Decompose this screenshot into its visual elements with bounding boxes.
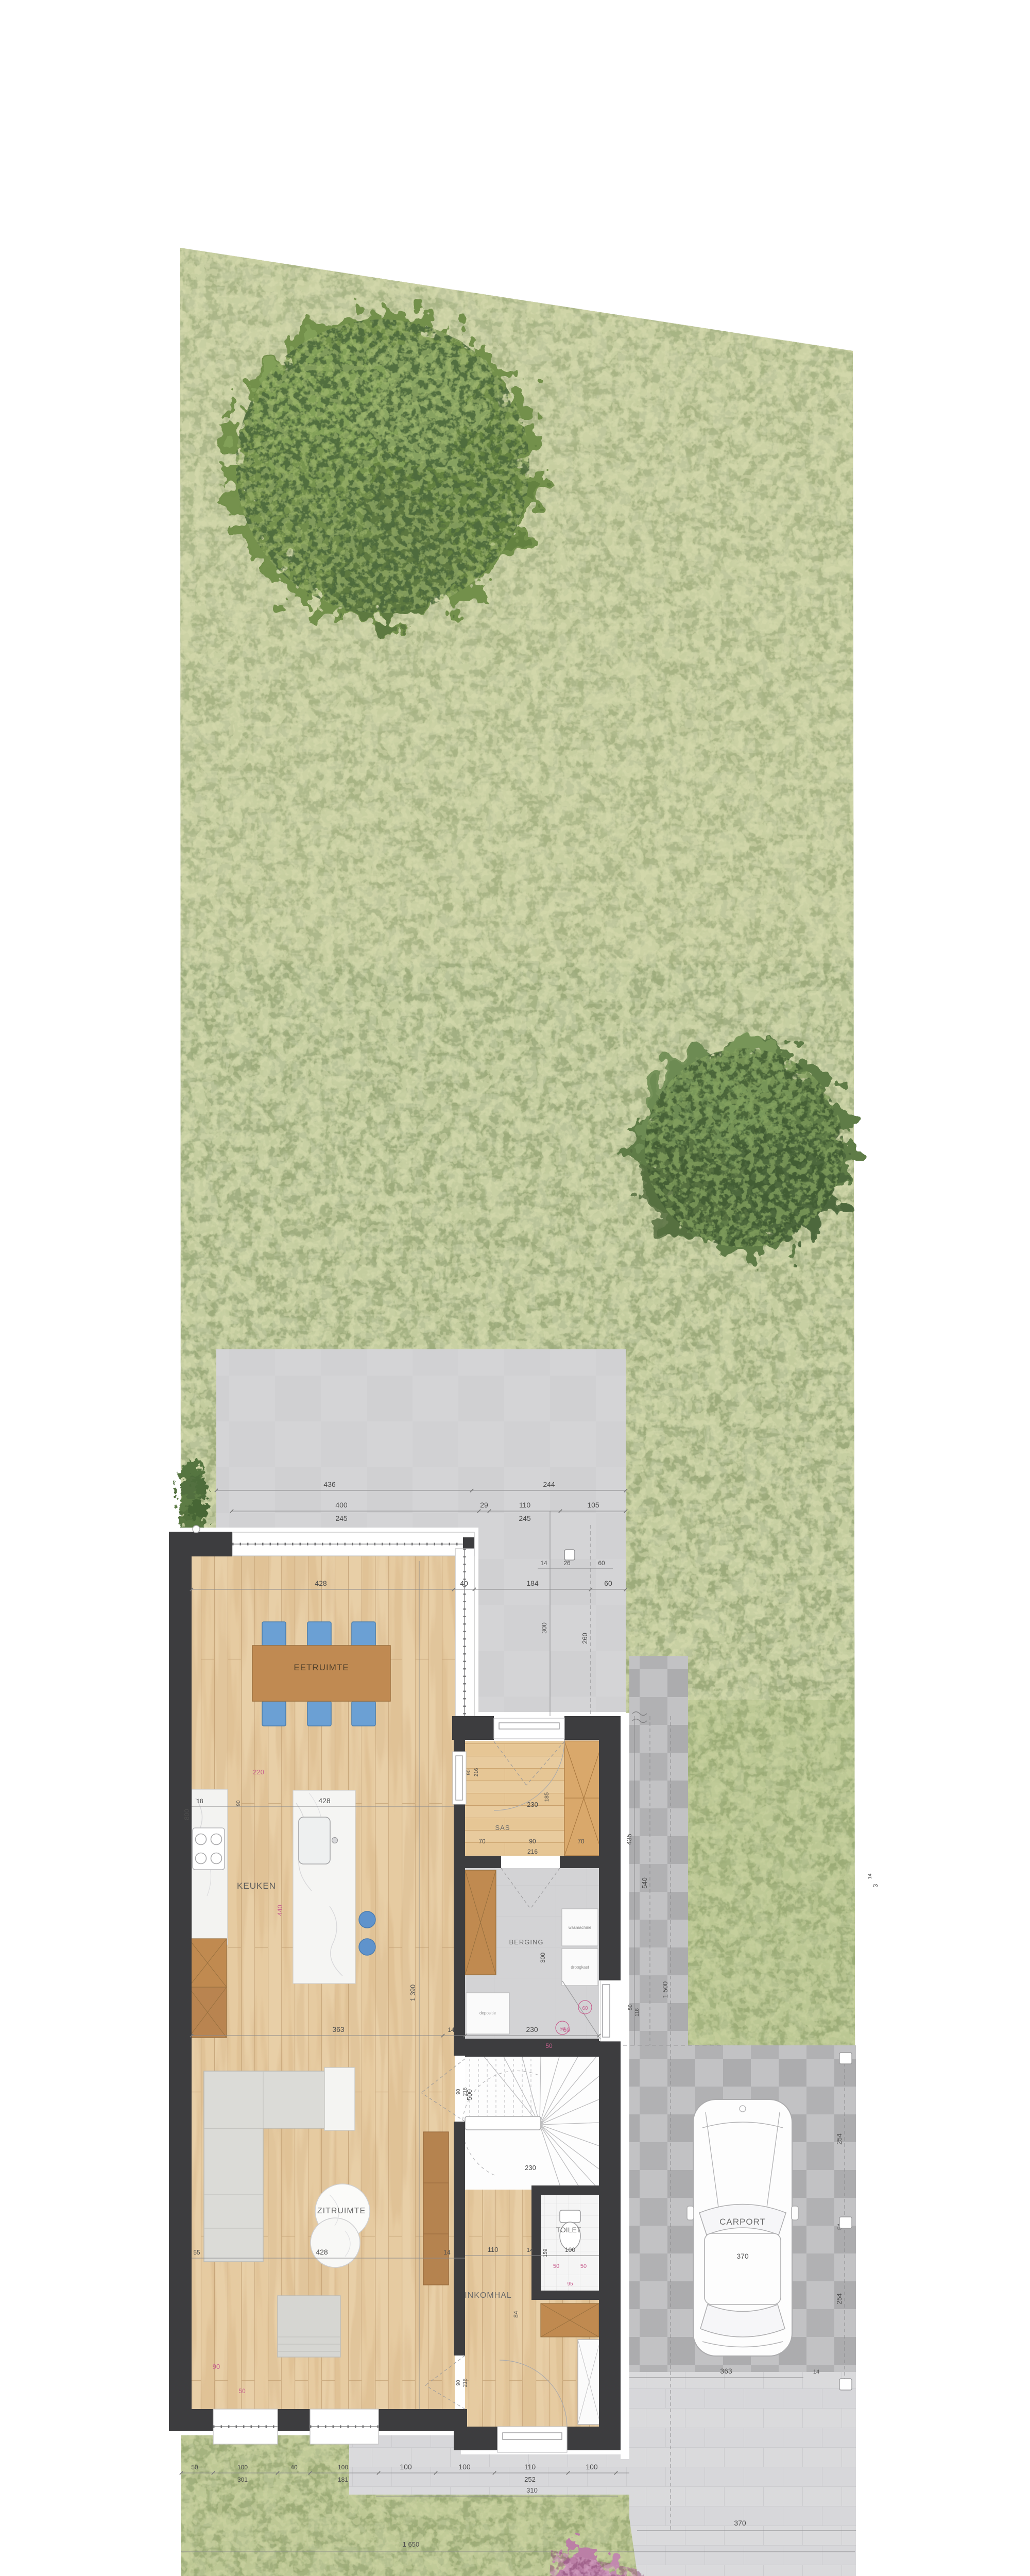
svg-text:INKOMHAL: INKOMHAL	[465, 2291, 512, 2300]
svg-text:90: 90	[456, 2089, 461, 2095]
svg-text:244: 244	[543, 1480, 555, 1488]
svg-text:wasmachine: wasmachine	[568, 1925, 592, 1930]
svg-text:90: 90	[213, 2363, 220, 2370]
svg-text:260: 260	[581, 1633, 589, 1644]
svg-text:50: 50	[553, 2263, 559, 2269]
svg-text:CARPORT: CARPORT	[719, 2217, 766, 2227]
svg-text:BERGING: BERGING	[509, 1938, 544, 1946]
svg-text:428: 428	[315, 1579, 327, 1587]
svg-text:110: 110	[488, 2246, 499, 2253]
svg-text:245: 245	[335, 1514, 348, 1522]
svg-text:1 500: 1 500	[661, 1981, 669, 1998]
svg-text:40: 40	[460, 1579, 468, 1587]
svg-text:230: 230	[527, 1801, 538, 1808]
svg-text:KEUKEN: KEUKEN	[237, 1881, 276, 1891]
svg-text:540: 540	[641, 1877, 648, 1889]
svg-text:100: 100	[458, 2463, 471, 2471]
svg-text:TOILET: TOILET	[556, 2226, 581, 2234]
svg-text:SAS: SAS	[495, 1824, 510, 1832]
svg-text:100: 100	[338, 2464, 348, 2471]
svg-text:216: 216	[462, 2087, 468, 2096]
svg-text:14: 14	[813, 2369, 819, 2375]
svg-text:droogkast: droogkast	[571, 1965, 589, 1970]
svg-text:90: 90	[529, 1838, 536, 1845]
svg-text:363: 363	[720, 2367, 732, 2375]
svg-text:185: 185	[544, 1792, 550, 1802]
svg-text:159: 159	[543, 2248, 548, 2257]
svg-text:435: 435	[625, 1834, 633, 1845]
svg-text:60: 60	[582, 2006, 588, 2011]
svg-text:50: 50	[238, 2387, 246, 2395]
svg-text:245: 245	[519, 1514, 531, 1522]
svg-text:181: 181	[338, 2476, 348, 2483]
svg-text:310: 310	[526, 2486, 538, 2494]
svg-text:800: 800	[183, 1809, 191, 1820]
svg-text:252: 252	[524, 2476, 536, 2483]
svg-text:216: 216	[462, 2378, 468, 2387]
svg-text:216: 216	[474, 1768, 479, 1776]
svg-text:50: 50	[559, 2026, 565, 2032]
svg-text:14: 14	[527, 2247, 533, 2253]
svg-text:EETRUIMTE: EETRUIMTE	[294, 1663, 349, 1672]
svg-text:300: 300	[540, 1622, 548, 1634]
svg-text:90: 90	[456, 2380, 461, 2386]
svg-text:14: 14	[443, 2249, 451, 2256]
svg-text:216: 216	[527, 1848, 538, 1855]
svg-text:70: 70	[478, 1838, 486, 1845]
svg-text:110: 110	[519, 1501, 531, 1509]
svg-text:depositie: depositie	[479, 2011, 496, 2015]
svg-text:100: 100	[565, 2246, 575, 2253]
svg-text:230: 230	[526, 2025, 538, 2033]
svg-text:18: 18	[196, 1798, 203, 1805]
svg-text:14: 14	[540, 1560, 547, 1567]
svg-text:100: 100	[586, 2463, 598, 2471]
svg-text:40: 40	[290, 2464, 298, 2471]
svg-text:90: 90	[466, 1769, 472, 1775]
svg-text:29: 29	[480, 1501, 488, 1509]
svg-text:370: 370	[734, 2519, 746, 2527]
svg-text:50: 50	[580, 2263, 587, 2269]
svg-text:3: 3	[872, 1884, 879, 1887]
svg-text:300: 300	[539, 1953, 546, 1963]
svg-text:26: 26	[563, 1560, 571, 1567]
svg-text:90: 90	[236, 1800, 242, 1806]
svg-text:100: 100	[400, 2463, 412, 2471]
svg-text:14: 14	[867, 1873, 873, 1879]
svg-text:1 390: 1 390	[409, 1985, 417, 2002]
svg-text:400: 400	[335, 1501, 348, 1509]
svg-text:14: 14	[448, 2026, 455, 2033]
svg-text:60: 60	[604, 1579, 612, 1587]
svg-text:428: 428	[316, 2248, 328, 2256]
svg-text:100: 100	[237, 2464, 248, 2471]
svg-text:ZITRUIMTE: ZITRUIMTE	[317, 2207, 366, 2215]
svg-text:254: 254	[835, 2293, 843, 2304]
svg-text:436: 436	[323, 1480, 336, 1488]
svg-text:60: 60	[598, 1560, 605, 1567]
svg-text:1 650: 1 650	[403, 2540, 420, 2548]
svg-text:95: 95	[567, 2281, 573, 2287]
svg-text:370: 370	[736, 2252, 749, 2260]
svg-text:184: 184	[526, 1579, 539, 1587]
svg-text:50: 50	[545, 2042, 553, 2049]
svg-text:363: 363	[332, 2025, 345, 2033]
svg-text:110: 110	[524, 2463, 536, 2471]
svg-text:50: 50	[191, 2464, 198, 2471]
svg-text:220: 220	[253, 1768, 264, 1776]
svg-text:105: 105	[587, 1501, 599, 1509]
svg-text:118: 118	[634, 2008, 640, 2016]
svg-text:70: 70	[577, 1838, 585, 1845]
svg-text:254: 254	[835, 2133, 843, 2145]
svg-text:230: 230	[525, 2164, 536, 2172]
svg-text:428: 428	[318, 1797, 331, 1805]
svg-text:50: 50	[628, 2004, 633, 2010]
svg-text:84: 84	[512, 2311, 520, 2318]
svg-text:301: 301	[237, 2476, 248, 2483]
svg-text:440: 440	[276, 1905, 284, 1916]
svg-text:55: 55	[193, 2249, 200, 2256]
